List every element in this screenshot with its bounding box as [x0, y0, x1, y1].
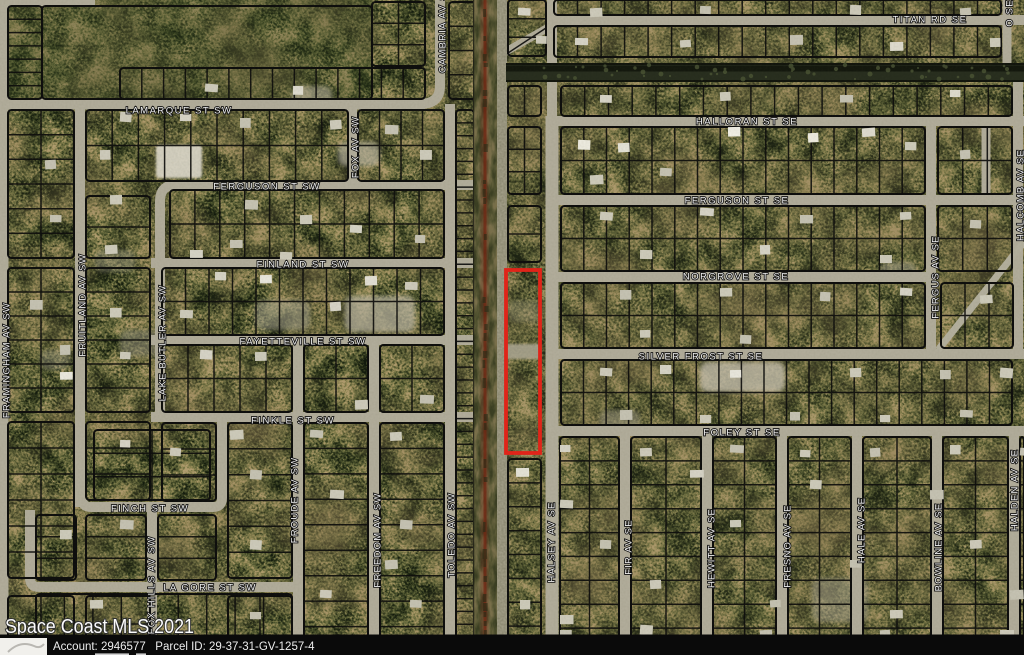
svg-text:LAKE BUTLER AV SW: LAKE BUTLER AV SW	[157, 285, 168, 402]
svg-text:O SE: O SE	[1004, 0, 1015, 27]
svg-text:FINCH ST SW: FINCH ST SW	[111, 503, 189, 514]
svg-text:FOX AV SW: FOX AV SW	[350, 116, 361, 178]
svg-text:CAMBRIA AV S: CAMBRIA AV S	[437, 0, 448, 73]
svg-text:LA GORE ST SW: LA GORE ST SW	[163, 582, 257, 593]
svg-text:FRESNO AV SE: FRESNO AV SE	[782, 504, 793, 587]
svg-text:FINKLE ST SW: FINKLE ST SW	[251, 415, 335, 426]
svg-text:HALDEN AV SE: HALDEN AV SE	[1009, 449, 1020, 531]
svg-text:FROUDE AV SW: FROUDE AV SW	[289, 457, 300, 544]
svg-text:HALSEY AV SE: HALSEY AV SE	[546, 501, 557, 582]
svg-text:TOLEDO AV SW: TOLEDO AV SW	[446, 492, 457, 577]
svg-text:FERGUSON ST SW: FERGUSON ST SW	[213, 181, 320, 192]
svg-text:FIR AV SE: FIR AV SE	[623, 519, 634, 575]
svg-text:FAYETTEVILLE ST SW: FAYETTEVILLE ST SW	[240, 336, 367, 347]
svg-text:FRAMINGHAM AV SW: FRAMINGHAM AV SW	[1, 302, 12, 418]
svg-text:FERGUSON ST SE: FERGUSON ST SE	[685, 195, 790, 206]
svg-text:FINLAND ST SW: FINLAND ST SW	[257, 259, 350, 270]
svg-text:TITAN RD SE: TITAN RD SE	[893, 14, 968, 25]
svg-text:FREEDOM AV SW: FREEDOM AV SW	[372, 492, 383, 587]
svg-text:NORGROVE ST SE: NORGROVE ST SE	[683, 271, 789, 282]
svg-text:HEWITT AV SE: HEWITT AV SE	[706, 508, 717, 588]
svg-text:SILVER FROST ST SE: SILVER FROST ST SE	[639, 351, 764, 362]
svg-text:FERGUS AV SE: FERGUS AV SE	[930, 235, 941, 318]
svg-text:FRUITLAND AV SW: FRUITLAND AV SW	[77, 253, 88, 356]
svg-text:LAMARQUE ST SW: LAMARQUE ST SW	[126, 105, 233, 116]
svg-text:HALCOMB AV SE: HALCOMB AV SE	[1015, 149, 1024, 241]
svg-text:BOWLINE AV SE: BOWLINE AV SE	[933, 503, 944, 592]
svg-text:Account: 2946577 Parcel ID:: Account: 2946577 Parcel ID: 29-37-31-GV-…	[53, 641, 315, 653]
svg-text:FOLEY ST SE: FOLEY ST SE	[703, 427, 780, 438]
svg-text:HALE AV SE: HALE AV SE	[856, 497, 867, 563]
svg-text:HALLORAN ST SE: HALLORAN ST SE	[696, 116, 798, 127]
